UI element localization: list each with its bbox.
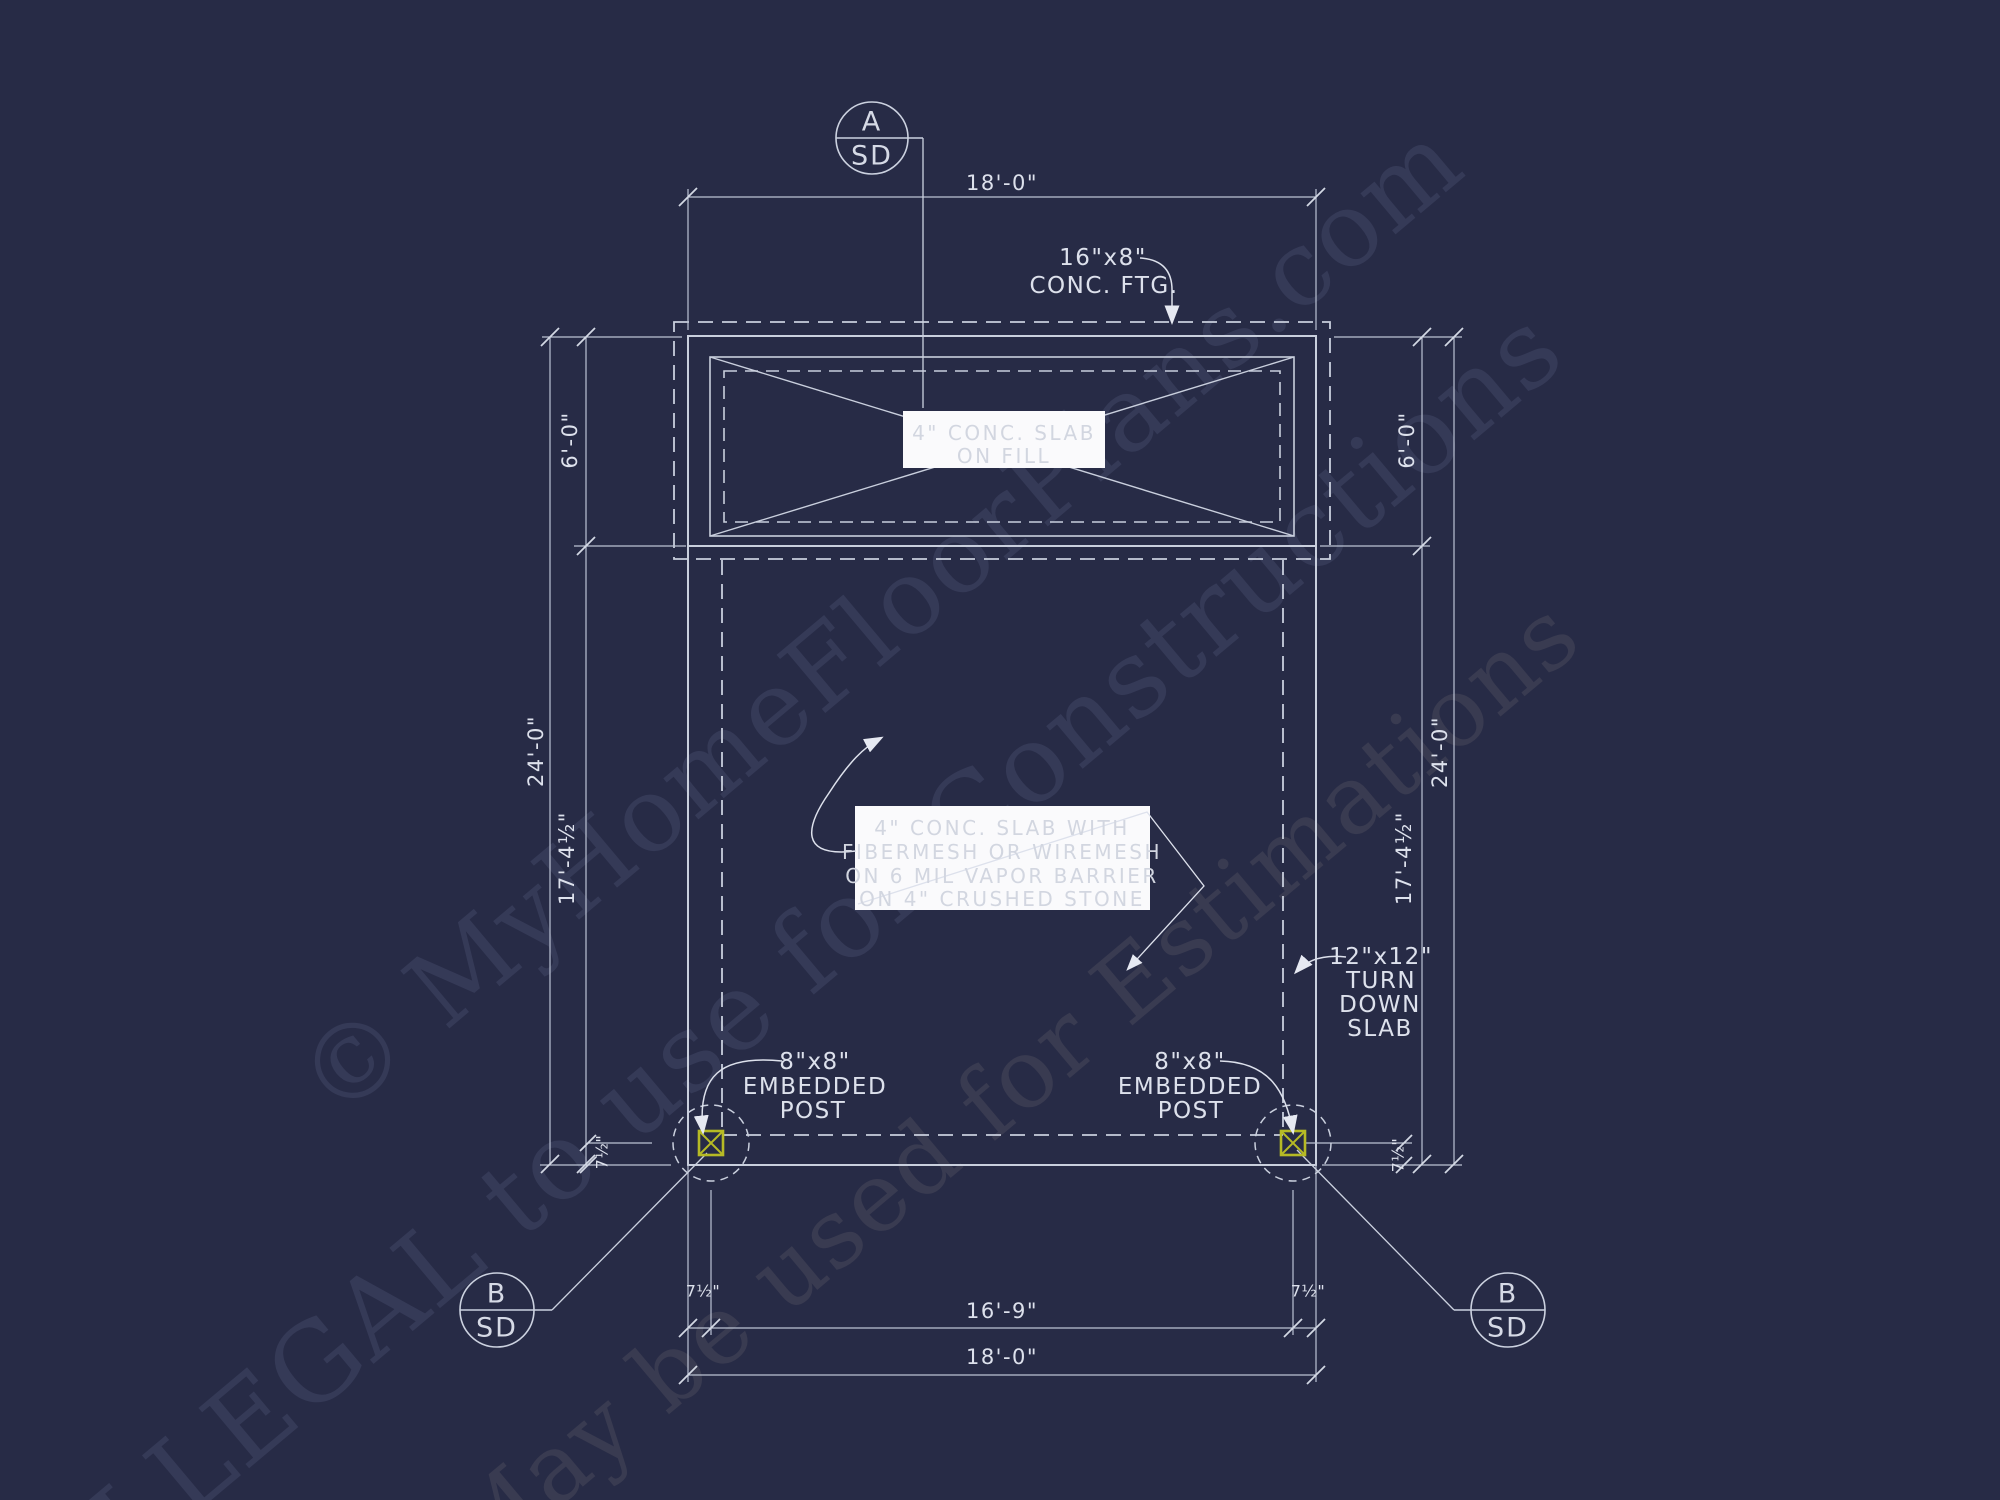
footing-label-type: CONC. FTG. — [1029, 273, 1178, 299]
dimension-ticks — [541, 188, 1463, 1384]
main-slab-note-line3: ON 6 MIL VAPOR BARRIER — [845, 864, 1159, 888]
blueprint-drawing — [0, 0, 2000, 1500]
post-left-label-size: 8"x8" — [779, 1049, 851, 1075]
dim-post-offset-bottom-right: 7½" — [1291, 1282, 1326, 1301]
callout-a-sheet: SD — [851, 141, 893, 172]
turndown-label-line4: SLAB — [1347, 1016, 1412, 1042]
turndown-label-size: 12"x12" — [1329, 944, 1433, 970]
leader-lines — [702, 258, 1346, 1132]
main-slab-note-line1: 4" CONC. SLAB WITH — [874, 816, 1130, 840]
main-slab-note-line2: FIBERMESH OR WIREMESH — [842, 840, 1162, 864]
dim-top-width: 18'-0" — [966, 171, 1038, 195]
callout-b-right-letter: B — [1498, 1279, 1519, 1310]
post-left-label-line3: POST — [780, 1098, 847, 1124]
callout-a-letter: A — [862, 107, 882, 138]
dim-left-overall: 24'-0" — [524, 715, 548, 787]
embedded-post-symbol-left — [673, 1105, 749, 1181]
dim-left-upper: 6'-0" — [558, 411, 582, 468]
turndown-label-line3: DOWN — [1339, 992, 1421, 1018]
dim-right-overall: 24'-0" — [1428, 716, 1452, 788]
dim-right-upper: 6'-0" — [1395, 411, 1419, 468]
callout-b-left-sheet: SD — [476, 1313, 518, 1344]
dim-bottom-width: 18'-0" — [966, 1345, 1038, 1369]
dim-post-offset-right: 7½" — [1389, 1138, 1408, 1173]
foundation-plan-canvas: © MyHomeFloorPlans.com ILLEGAL to use fo… — [0, 0, 2000, 1500]
callout-b-right-sheet: SD — [1487, 1313, 1529, 1344]
dimension-lines — [540, 189, 1462, 1382]
post-right-label-line2: EMBEDDED — [1118, 1074, 1262, 1100]
turndown-label-line2: TURN — [1346, 968, 1416, 994]
dim-post-offset-left: 7½" — [593, 1135, 612, 1170]
dim-post-offset-bottom-left: 7½" — [686, 1282, 721, 1301]
callout-b-left-letter: B — [487, 1279, 508, 1310]
post-right-label-line3: POST — [1158, 1098, 1225, 1124]
dim-right-lower: 17'-4½" — [1392, 811, 1416, 905]
dim-post-spacing: 16'-9" — [966, 1299, 1038, 1323]
post-right-label-size: 8"x8" — [1154, 1049, 1226, 1075]
main-slab-note-line4: ON 4" CRUSHED STONE — [859, 887, 1145, 911]
post-left-label-line2: EMBEDDED — [743, 1074, 887, 1100]
footing-label-size: 16"x8" — [1059, 245, 1147, 271]
dim-left-lower: 17'-4½" — [555, 811, 579, 905]
porch-slab-note-line1: 4" CONC. SLAB — [912, 421, 1096, 445]
porch-slab-note-line2: ON FILL — [957, 444, 1051, 468]
